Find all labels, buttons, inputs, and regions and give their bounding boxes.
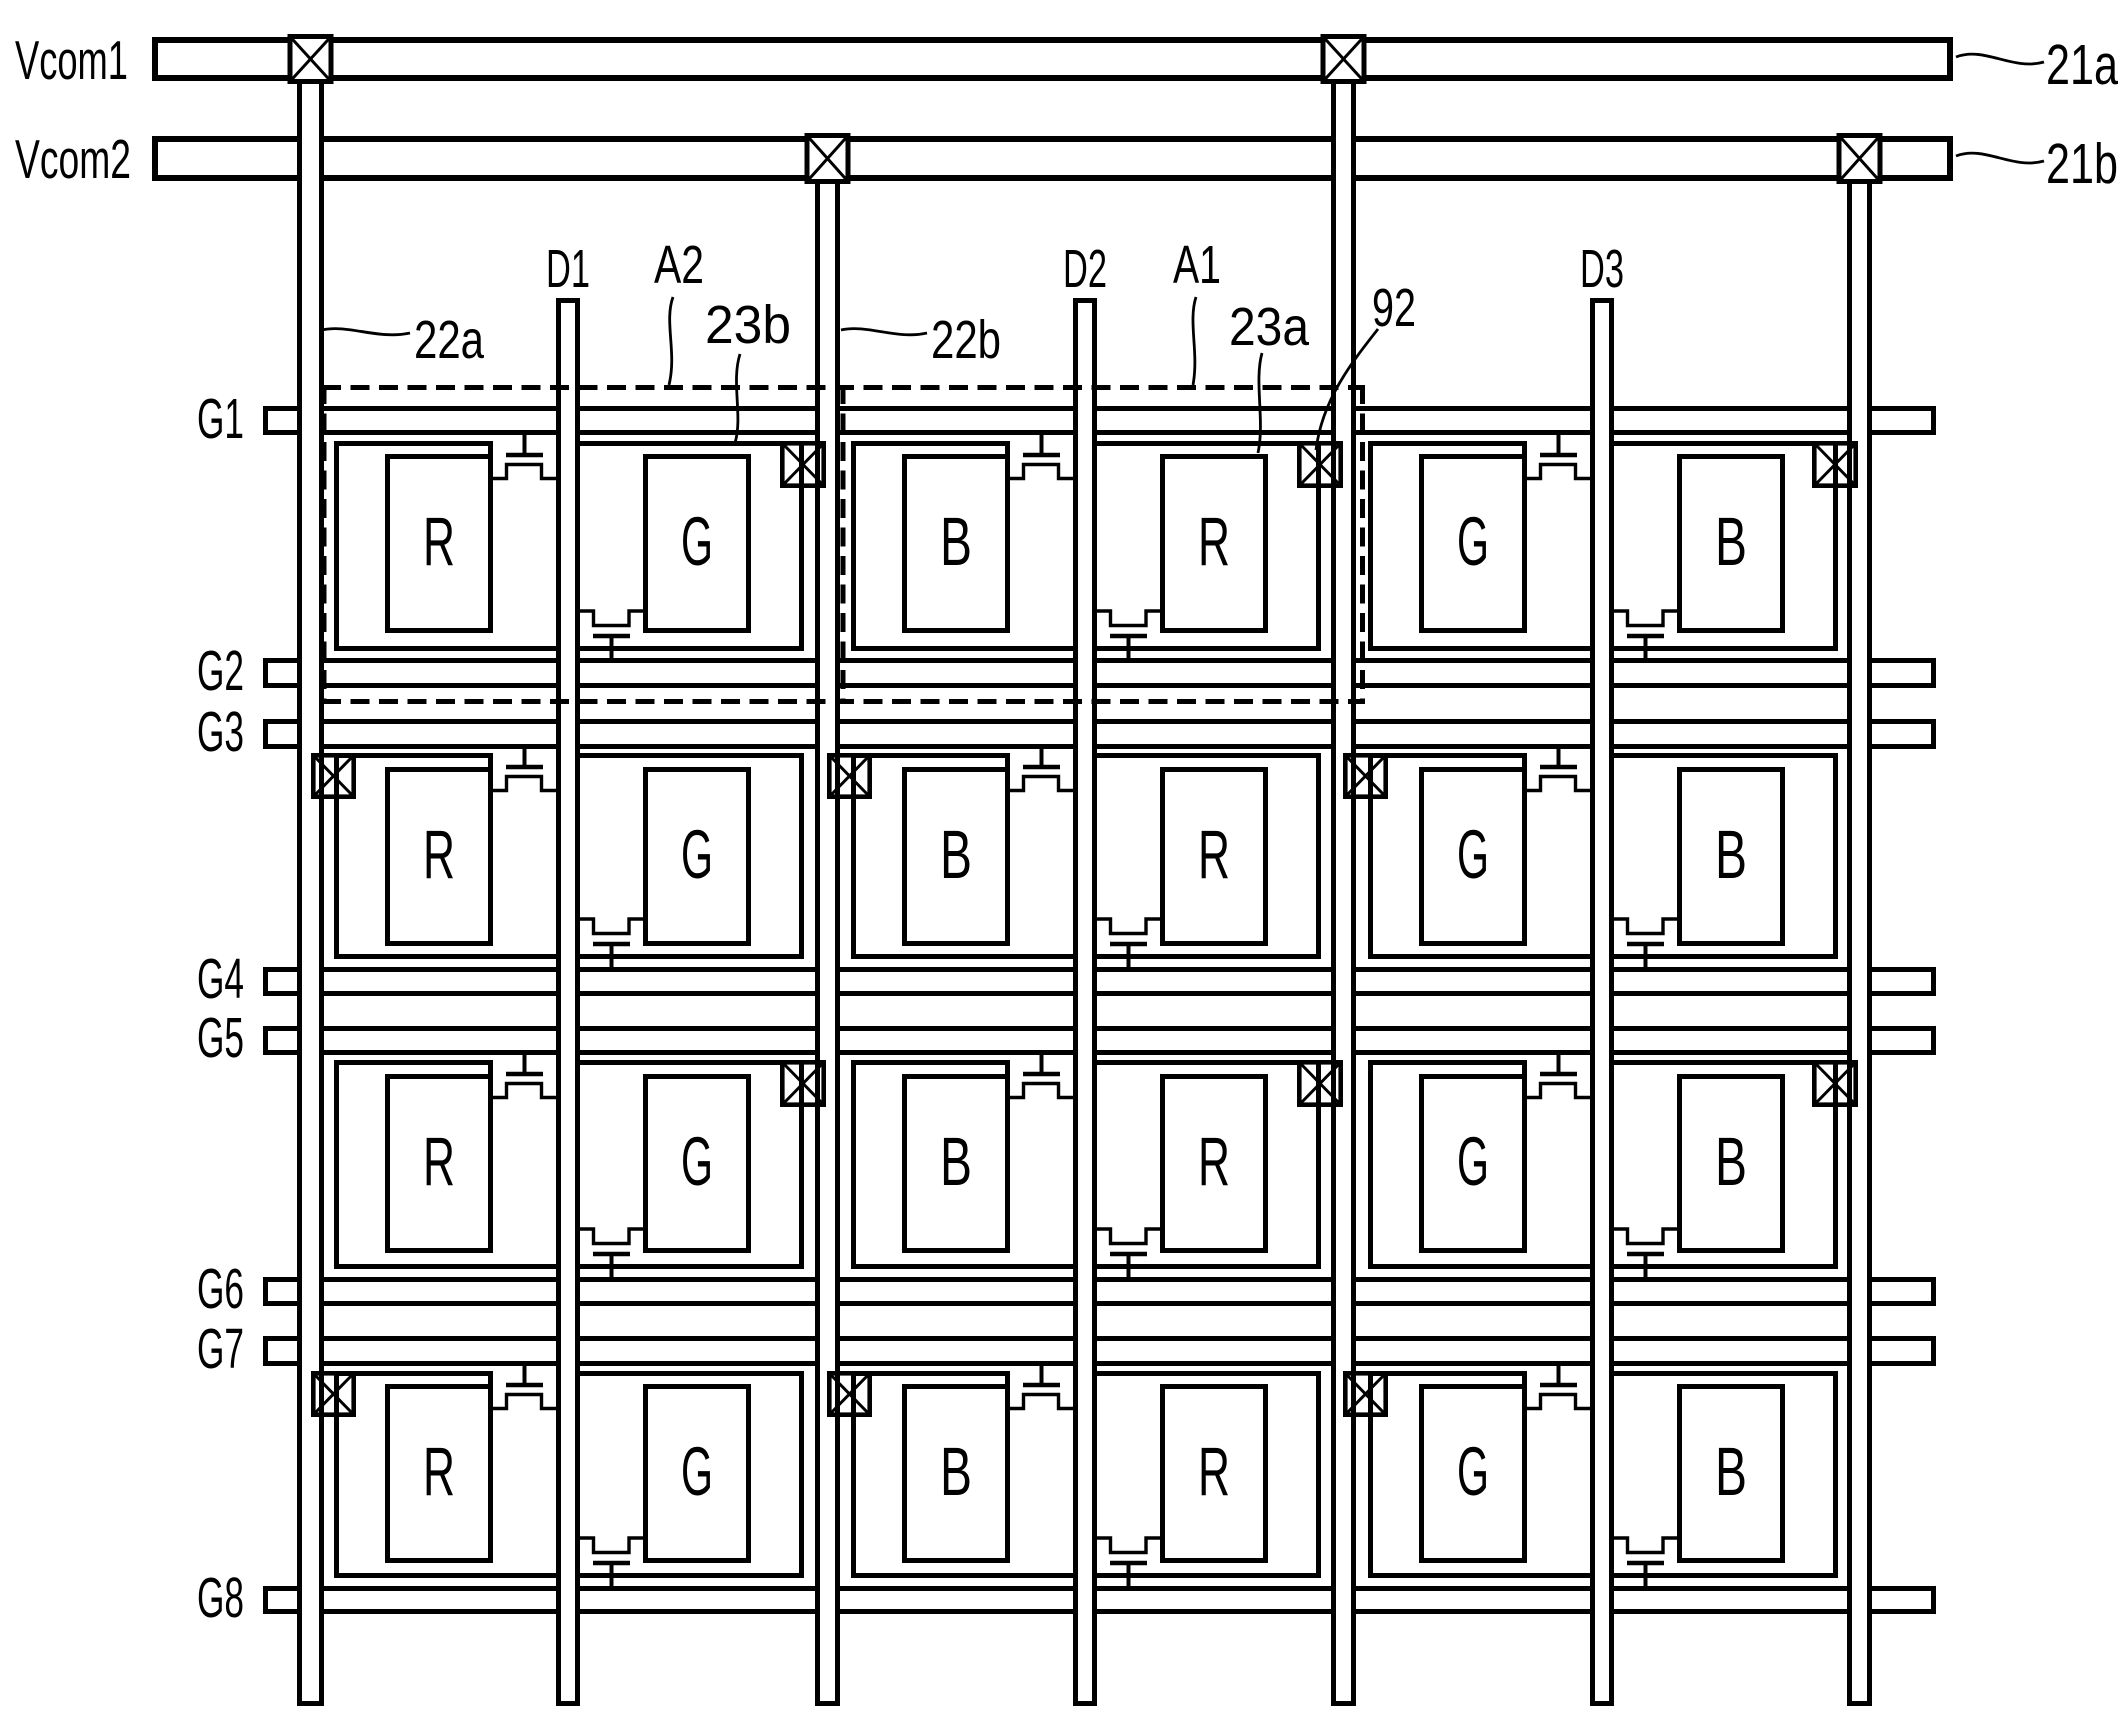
svg-text:G6: G6 — [197, 1257, 244, 1321]
svg-text:R: R — [423, 503, 455, 580]
svg-text:D3: D3 — [1580, 239, 1624, 299]
svg-text:G4: G4 — [197, 947, 244, 1011]
svg-text:R: R — [423, 1123, 455, 1200]
svg-text:22b: 22b — [931, 310, 1001, 370]
svg-text:21a: 21a — [2046, 33, 2118, 97]
svg-text:G: G — [681, 1123, 713, 1200]
svg-text:D2: D2 — [1063, 239, 1107, 299]
svg-text:R: R — [1198, 503, 1230, 580]
svg-text:G3: G3 — [197, 700, 244, 764]
svg-text:R: R — [1198, 1123, 1230, 1200]
svg-text:B: B — [940, 816, 972, 893]
svg-text:23b: 23b — [705, 295, 791, 355]
svg-text:B: B — [1715, 816, 1747, 893]
svg-text:R: R — [1198, 816, 1230, 893]
svg-text:B: B — [940, 1123, 972, 1200]
svg-text:Vcom2: Vcom2 — [15, 128, 131, 190]
svg-text:B: B — [1715, 1433, 1747, 1510]
svg-text:R: R — [423, 816, 455, 893]
svg-text:G: G — [1457, 816, 1489, 893]
svg-text:B: B — [1715, 1123, 1747, 1200]
svg-text:G2: G2 — [197, 639, 244, 703]
svg-text:R: R — [1198, 1433, 1230, 1510]
svg-text:B: B — [940, 503, 972, 580]
svg-text:D1: D1 — [546, 239, 590, 299]
svg-text:A1: A1 — [1173, 235, 1221, 295]
svg-text:23a: 23a — [1229, 297, 1310, 357]
svg-text:A2: A2 — [654, 235, 704, 295]
svg-text:G1: G1 — [197, 387, 244, 451]
svg-text:B: B — [1715, 503, 1747, 580]
svg-text:G: G — [1457, 1123, 1489, 1200]
svg-text:G8: G8 — [197, 1566, 244, 1630]
svg-text:G: G — [1457, 503, 1489, 580]
svg-text:B: B — [940, 1433, 972, 1510]
svg-text:Vcom1: Vcom1 — [15, 29, 128, 91]
svg-text:G5: G5 — [197, 1006, 244, 1070]
svg-text:G: G — [1457, 1433, 1489, 1510]
svg-text:G: G — [681, 503, 713, 580]
svg-text:22a: 22a — [414, 310, 485, 370]
svg-text:92: 92 — [1372, 278, 1416, 338]
svg-text:G: G — [681, 816, 713, 893]
svg-text:R: R — [423, 1433, 455, 1510]
svg-text:21b: 21b — [2046, 132, 2118, 196]
svg-text:G7: G7 — [197, 1317, 244, 1381]
svg-text:G: G — [681, 1433, 713, 1510]
